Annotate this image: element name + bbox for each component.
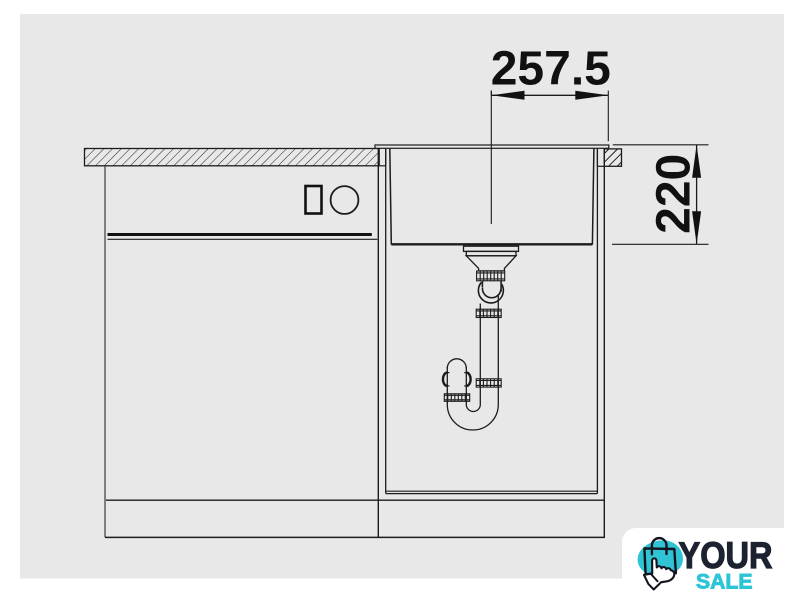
svg-text:257.5: 257.5	[491, 42, 611, 95]
svg-text:220: 220	[648, 154, 701, 234]
svg-text:SALE: SALE	[696, 569, 753, 593]
